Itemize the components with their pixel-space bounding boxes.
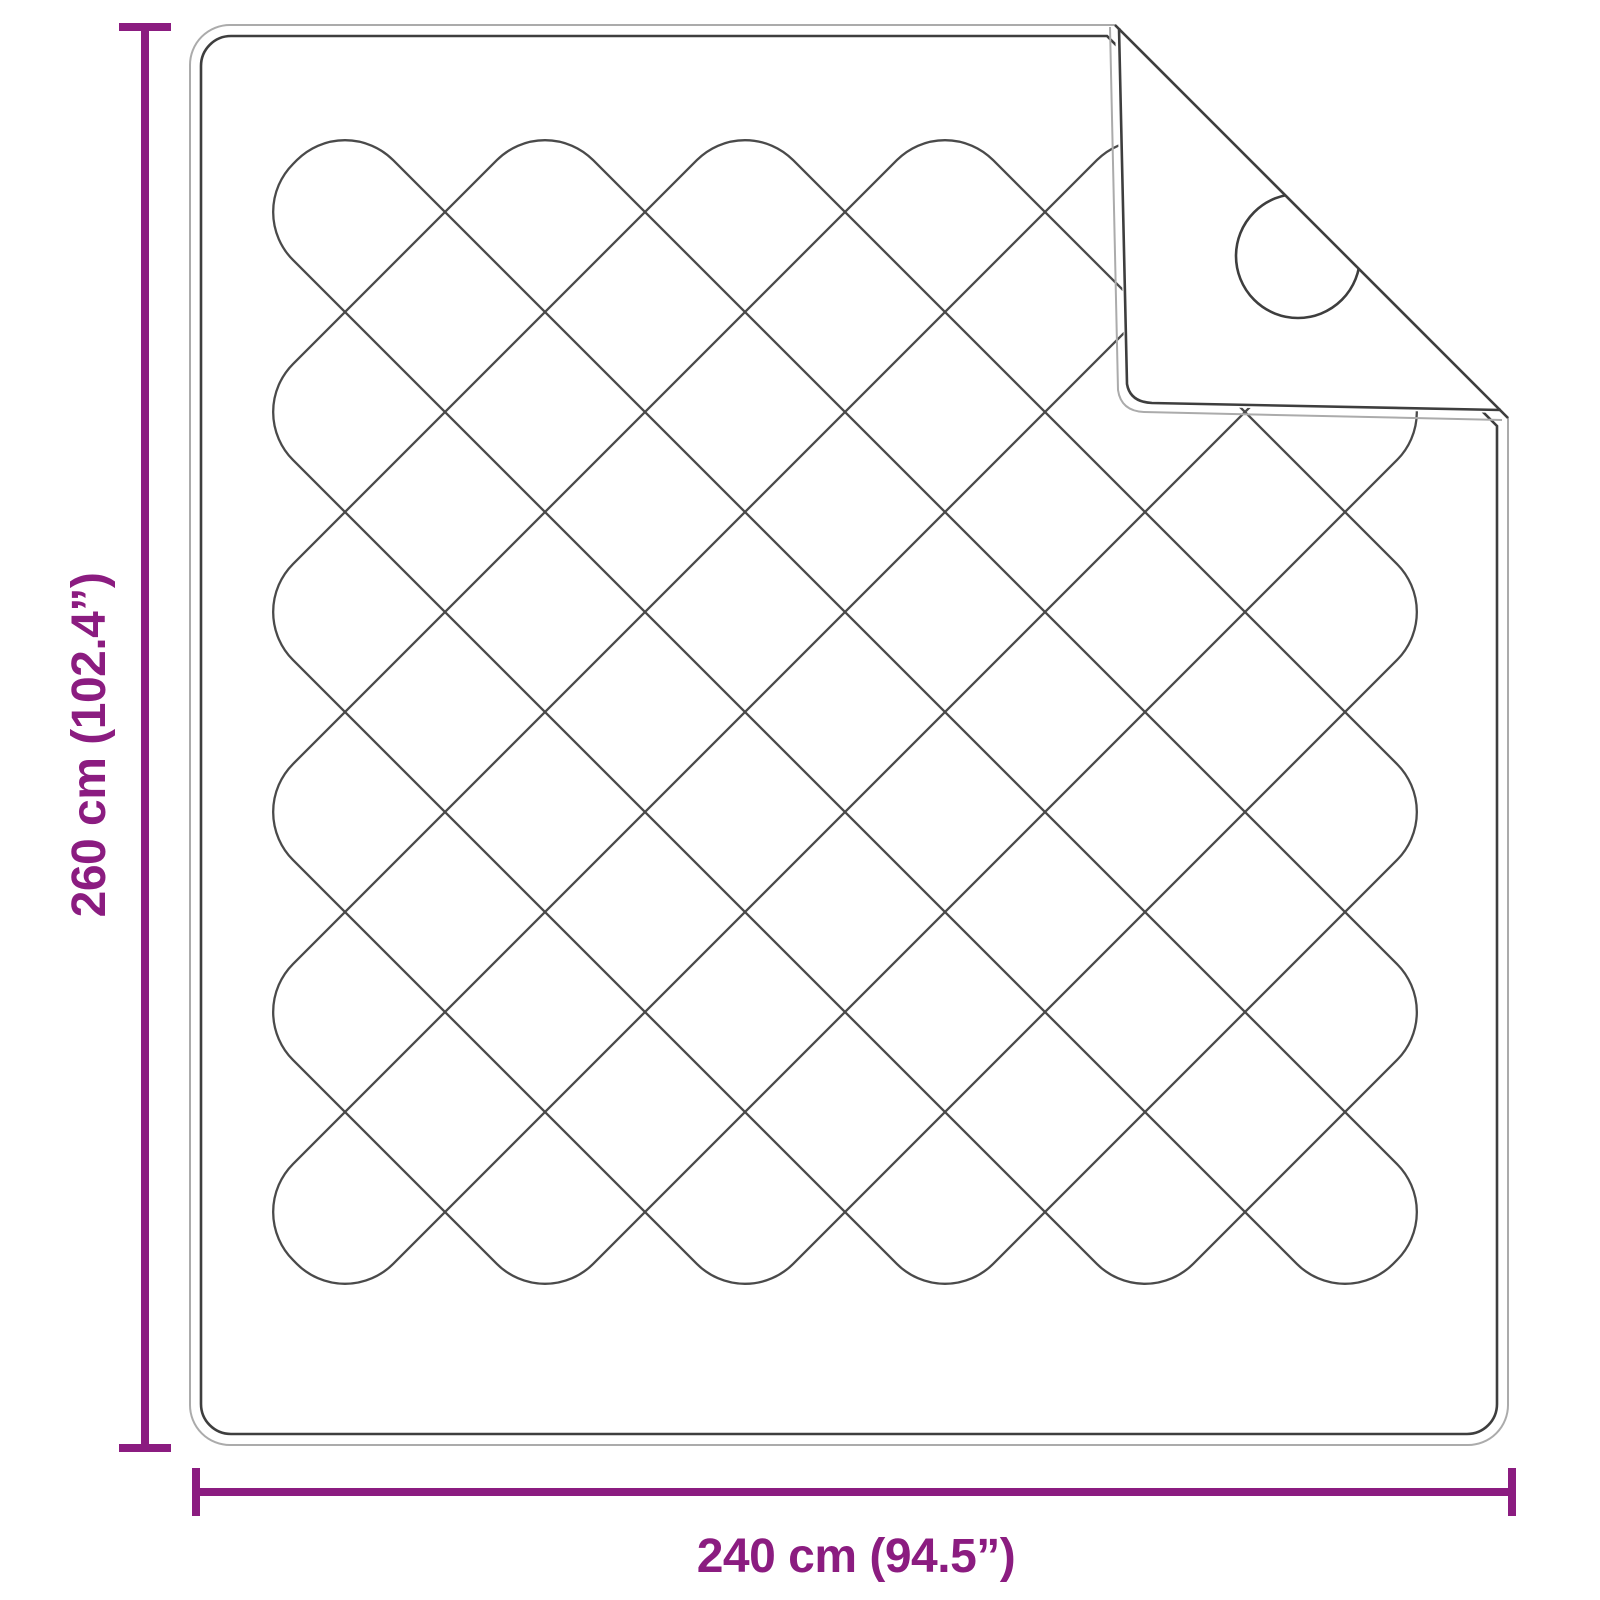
height-dimension-line [119,27,171,1448]
width-dimension-label: 240 cm (94.5”) [697,1530,1016,1583]
blanket-diagram: 260 cm (102.4”) 240 cm (94.5”) [0,0,1600,1600]
height-dimension-label: 260 cm (102.4”) [63,573,116,918]
product-dimension-diagram: 260 cm (102.4”) 240 cm (94.5”) [0,0,1600,1600]
folded-corner [1110,25,1508,420]
width-dimension-line [196,1468,1512,1516]
